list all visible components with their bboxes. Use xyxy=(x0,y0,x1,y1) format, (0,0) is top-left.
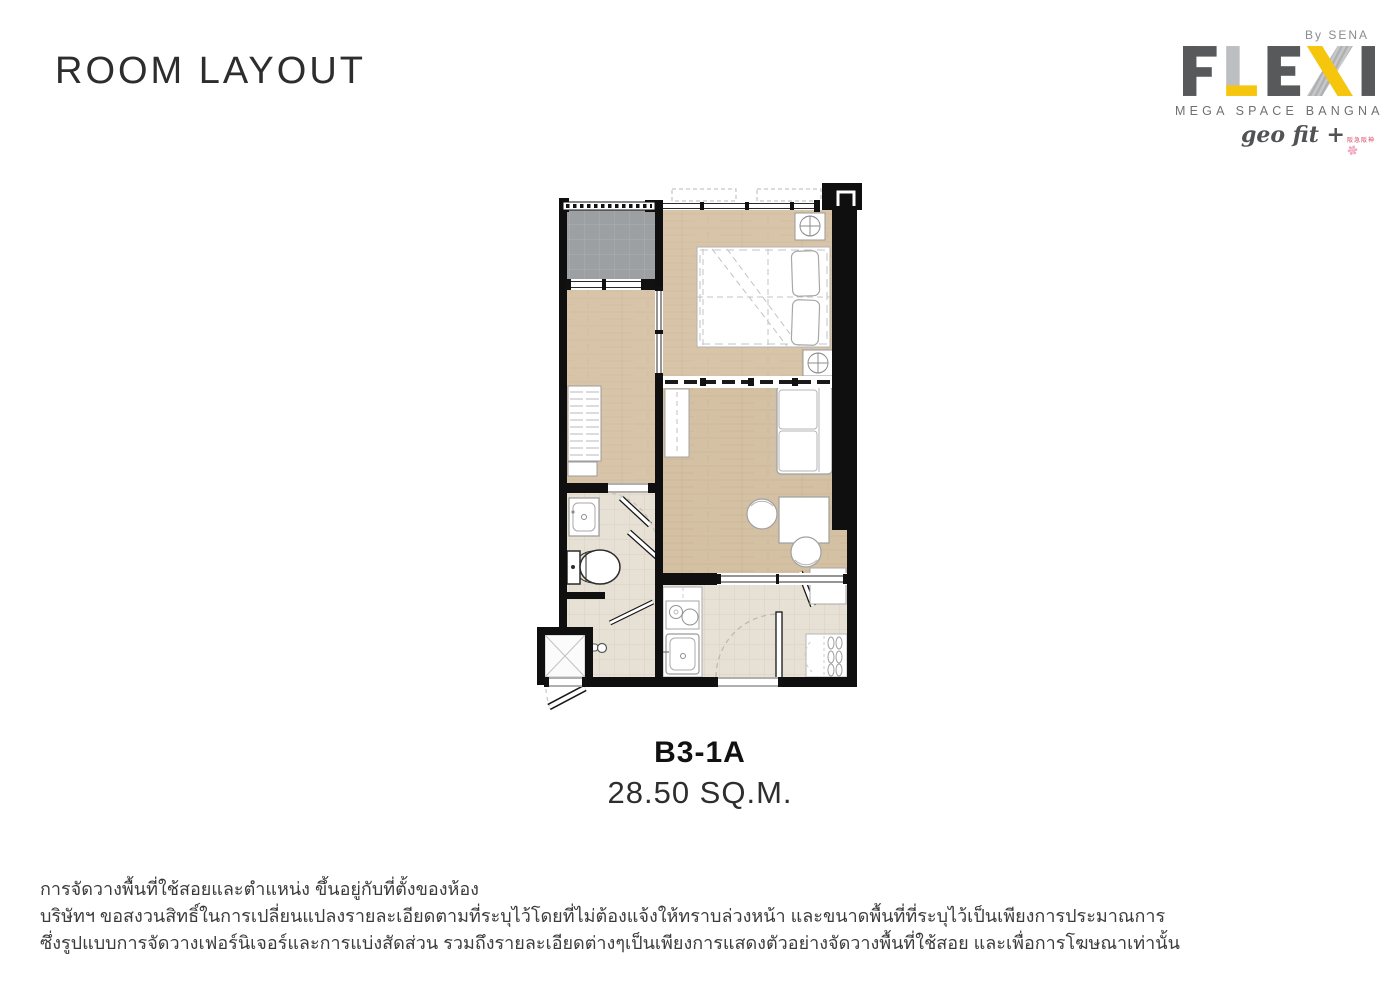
letter-x xyxy=(1307,46,1353,96)
geofit-logo: geo fit + 阪急阪神 ✽ xyxy=(1175,124,1375,157)
entrance-door-opening xyxy=(713,677,783,687)
chair-1 xyxy=(747,499,777,529)
flexi-logo-icon xyxy=(1183,45,1375,97)
kitchen-counter xyxy=(663,587,702,677)
disclaimer-line-3: ซึ่งรูปแบบการจัดวางเฟอร์นิเจอร์และการแบ่… xyxy=(40,930,1180,957)
wardrobe xyxy=(568,386,601,476)
unit-code: B3-1A xyxy=(500,736,900,770)
toilet xyxy=(567,550,620,584)
disclaimer-line-2: บริษัทฯ ขอสงวนสิทธิ์ในการเปลี่ยนแปลงรายล… xyxy=(40,903,1180,930)
balcony-door-window xyxy=(565,279,655,290)
interior-glass-door xyxy=(655,287,663,377)
page-title: ROOM LAYOUT xyxy=(55,50,366,93)
unit-area: 28.50 SQ.M. xyxy=(500,775,900,811)
letter-e xyxy=(1267,46,1300,96)
curtain-boxes xyxy=(672,189,821,201)
room-layout-page: ROOM LAYOUT By SENA xyxy=(0,0,1400,990)
balcony-floor xyxy=(567,210,655,279)
logo-by-sena: By SENA xyxy=(1175,28,1369,42)
ledge-threshold xyxy=(544,677,587,687)
ceiling-fan-unit-2 xyxy=(803,350,833,376)
double-bed xyxy=(697,247,830,347)
brand-logo: By SENA xyxy=(1175,28,1375,157)
chair-2 xyxy=(791,537,821,567)
geofit-text: geo fit + xyxy=(1241,124,1345,146)
stove xyxy=(666,601,699,629)
entry-sliding-door xyxy=(717,573,847,585)
floor-plan-drawing xyxy=(532,178,868,714)
bathroom-door-opening xyxy=(608,483,648,493)
service-ledge xyxy=(545,635,585,707)
logo-subtitle: MEGA SPACE BANGNA xyxy=(1175,104,1375,118)
letter-i xyxy=(1362,46,1375,96)
shoe-rack xyxy=(805,634,847,677)
ceiling-fan-unit-1 xyxy=(795,213,825,240)
wash-basin xyxy=(569,498,599,536)
disclaimer: การจัดวางพื้นที่ใช้สอยและตำแหน่ง ขึ้นอยู… xyxy=(40,876,1180,957)
balcony-louver xyxy=(563,202,655,210)
tv-console xyxy=(665,389,689,457)
unit-label: B3-1A 28.50 SQ.M. xyxy=(500,736,900,811)
letter-f xyxy=(1183,46,1217,96)
sofa xyxy=(773,383,835,477)
sparkle-icon: ✽ xyxy=(1345,143,1360,159)
floor-plan xyxy=(532,178,868,714)
disclaimer-line-1: การจัดวางพื้นที่ใช้สอยและตำแหน่ง ขึ้นอยู… xyxy=(40,876,1180,903)
letter-l xyxy=(1226,46,1257,96)
sliding-partition xyxy=(663,376,832,388)
kitchen-sink xyxy=(663,634,699,674)
